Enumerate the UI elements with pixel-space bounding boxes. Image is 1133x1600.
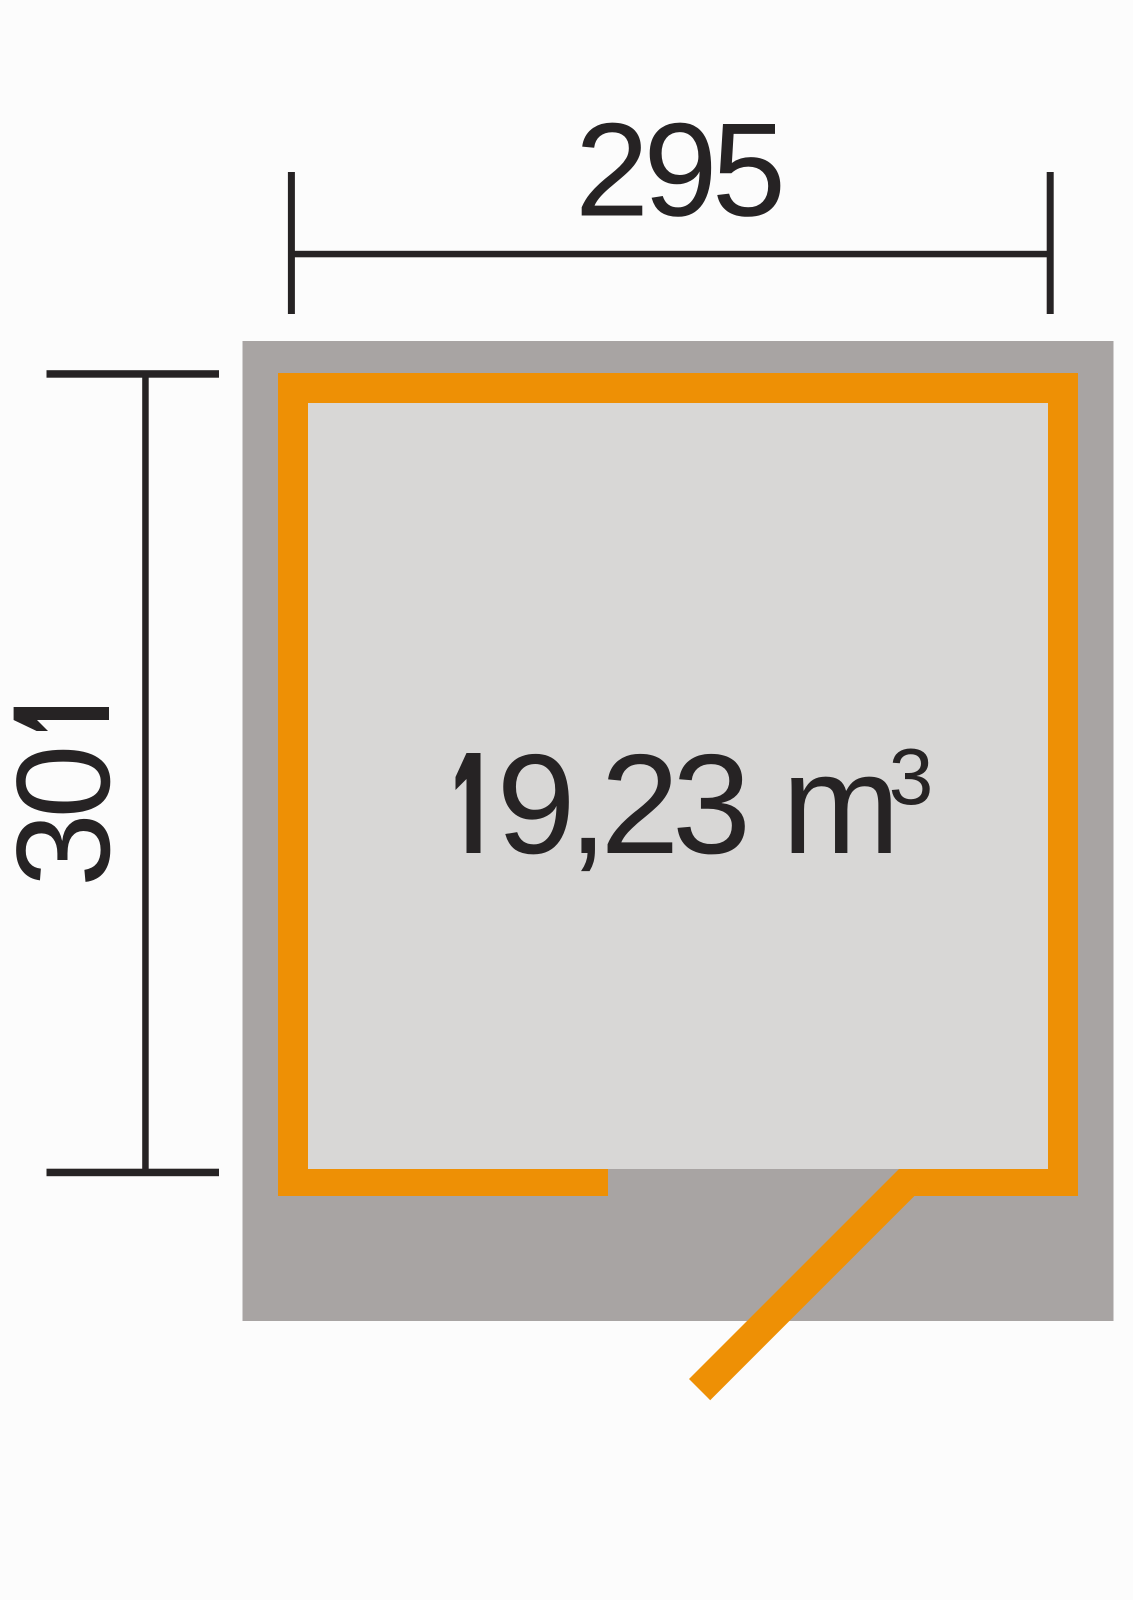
svg-text:295: 295	[575, 97, 781, 245]
svg-text:9,23m3: 9,23m3	[497, 725, 930, 884]
svg-text:30: 30	[0, 750, 138, 887]
